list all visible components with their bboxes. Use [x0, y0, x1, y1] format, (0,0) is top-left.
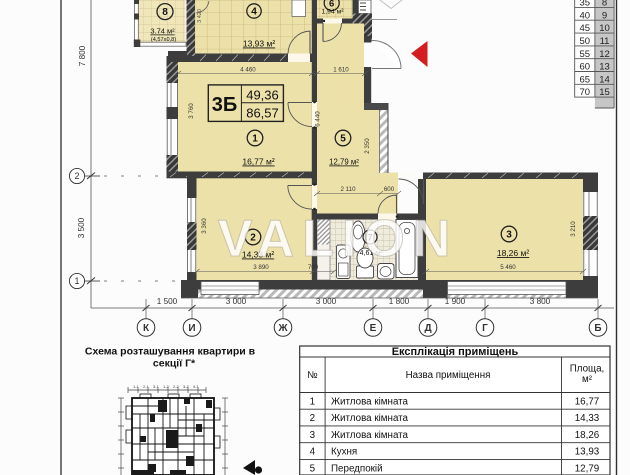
svg-text:7 800: 7 800 — [78, 45, 87, 66]
svg-text:600: 600 — [384, 186, 395, 193]
svg-text:3 360: 3 360 — [201, 218, 208, 234]
svg-text:4-1: 4-1 — [193, 384, 200, 389]
svg-text:86,57: 86,57 — [246, 106, 279, 121]
svg-text:Г: Г — [482, 323, 488, 334]
svg-text:35: 35 — [580, 0, 591, 9]
svg-text:5 460: 5 460 — [500, 264, 516, 271]
svg-text:45: 45 — [580, 23, 591, 34]
svg-text:2: 2 — [74, 171, 79, 181]
svg-text:1 610: 1 610 — [333, 67, 349, 74]
svg-text:18,26 м²: 18,26 м² — [497, 248, 529, 258]
svg-text:13,93 м²: 13,93 м² — [243, 39, 275, 49]
svg-text:3-2: 3-2 — [183, 384, 190, 389]
svg-text:Площа,: Площа, — [570, 364, 605, 375]
svg-text:11: 11 — [600, 36, 610, 47]
svg-text:3-1: 3-1 — [153, 384, 160, 389]
svg-text:Житлова кімната: Житлова кімната — [331, 413, 409, 424]
svg-text:(4,57х0,8): (4,57х0,8) — [151, 37, 176, 43]
svg-text:1-2: 1-2 — [163, 384, 170, 389]
svg-text:2 110: 2 110 — [340, 186, 356, 193]
svg-text:14: 14 — [599, 74, 610, 85]
svg-text:16,77: 16,77 — [575, 397, 600, 408]
svg-text:3 800: 3 800 — [530, 297, 551, 306]
svg-text:5: 5 — [310, 463, 316, 474]
svg-text:Передпокій: Передпокій — [331, 463, 383, 474]
svg-text:8: 8 — [162, 7, 168, 18]
svg-text:2-1: 2-1 — [143, 384, 150, 389]
svg-text:3 500: 3 500 — [77, 217, 86, 238]
svg-text:50: 50 — [580, 36, 591, 47]
svg-text:13: 13 — [599, 62, 610, 73]
svg-text:1,94 м²: 1,94 м² — [321, 9, 344, 16]
svg-text:Б: Б — [594, 323, 601, 334]
svg-text:Житлова кімната: Житлова кімната — [331, 397, 409, 408]
svg-text:Житлова кімната: Житлова кімната — [331, 430, 409, 441]
svg-text:3 210: 3 210 — [570, 221, 577, 237]
svg-text:2: 2 — [310, 413, 315, 424]
svg-text:секції Г*: секції Г* — [153, 358, 196, 370]
svg-text:3 760: 3 760 — [188, 103, 195, 119]
svg-text:4: 4 — [251, 7, 257, 18]
svg-text:16,77 м²: 16,77 м² — [242, 157, 274, 167]
svg-text:VALION: VALION — [218, 210, 459, 268]
svg-text:1 800: 1 800 — [389, 297, 410, 306]
svg-text:12,79 м²: 12,79 м² — [329, 158, 359, 167]
svg-text:Д: Д — [424, 323, 431, 334]
svg-text:3: 3 — [310, 430, 316, 441]
svg-text:6 440: 6 440 — [315, 111, 322, 127]
svg-text:Назва приміщення: Назва приміщення — [406, 370, 491, 381]
svg-text:Схема розташування квартири в: Схема розташування квартири в — [85, 346, 256, 358]
svg-text:И: И — [188, 323, 195, 334]
svg-text:3Б: 3Б — [212, 94, 238, 116]
svg-text:3 000: 3 000 — [316, 297, 337, 306]
svg-text:№: № — [307, 370, 318, 381]
svg-text:1 900: 1 900 — [445, 297, 466, 306]
svg-text:18,26: 18,26 — [575, 430, 600, 441]
svg-text:м²: м² — [582, 374, 593, 385]
svg-text:3.74 м²: 3.74 м² — [150, 27, 175, 36]
svg-text:3 420: 3 420 — [197, 9, 203, 23]
svg-text:5: 5 — [340, 134, 346, 145]
svg-text:10: 10 — [599, 23, 610, 34]
svg-text:3 000: 3 000 — [226, 297, 247, 306]
svg-text:4 460: 4 460 — [240, 67, 256, 74]
svg-text:12: 12 — [599, 49, 610, 60]
svg-text:Е: Е — [370, 323, 377, 334]
svg-text:К: К — [143, 323, 150, 334]
svg-text:Експлікація приміщень: Експлікація приміщень — [392, 346, 519, 358]
svg-text:9: 9 — [602, 10, 607, 21]
svg-text:40: 40 — [580, 10, 591, 21]
svg-text:70: 70 — [580, 87, 591, 98]
svg-text:2-2: 2-2 — [173, 384, 180, 389]
svg-text:8: 8 — [602, 0, 607, 9]
svg-text:4: 4 — [310, 447, 316, 458]
svg-text:Ж: Ж — [277, 323, 288, 334]
svg-text:1: 1 — [310, 397, 315, 408]
svg-text:2 350: 2 350 — [364, 138, 371, 154]
svg-text:3: 3 — [506, 230, 512, 241]
svg-text:14,33: 14,33 — [575, 413, 600, 424]
svg-text:Кухня: Кухня — [331, 447, 357, 458]
svg-text:49,36: 49,36 — [246, 88, 279, 103]
svg-text:60: 60 — [580, 62, 591, 73]
svg-text:55: 55 — [580, 49, 591, 60]
svg-text:1: 1 — [252, 134, 258, 145]
svg-text:12,79: 12,79 — [575, 463, 600, 474]
svg-text:13,93: 13,93 — [575, 447, 600, 458]
svg-text:15: 15 — [599, 87, 610, 98]
svg-text:65: 65 — [580, 74, 591, 85]
svg-text:1 500: 1 500 — [157, 297, 178, 306]
svg-text:1: 1 — [74, 276, 79, 286]
svg-text:1-1: 1-1 — [133, 384, 140, 389]
